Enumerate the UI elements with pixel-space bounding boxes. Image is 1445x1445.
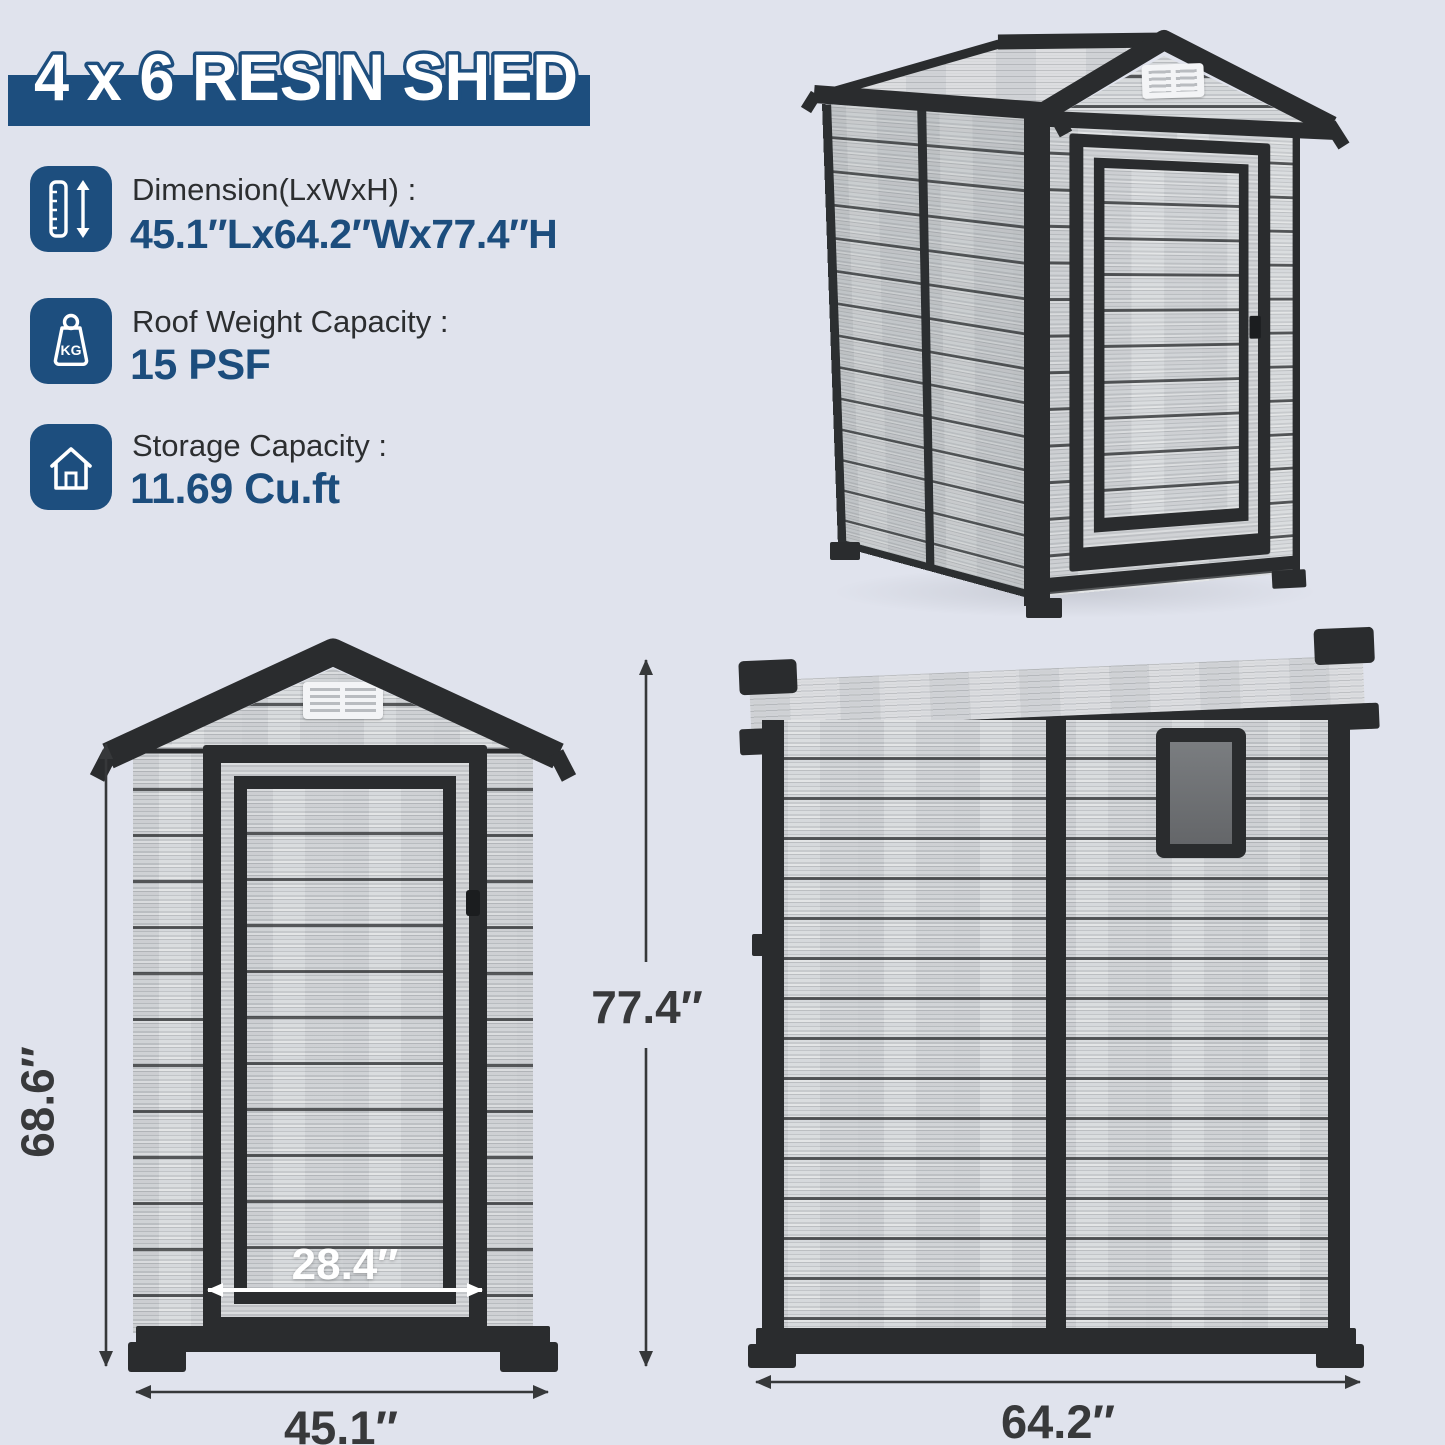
side-window-frame xyxy=(1156,728,1246,858)
weight-kg-icon: KG xyxy=(30,298,112,384)
front-door-panel xyxy=(247,789,443,1291)
house-icon xyxy=(30,424,112,510)
shed-3d-foot-front-left xyxy=(1026,598,1062,618)
side-wall xyxy=(762,720,1350,1340)
shed-3d-foot-rear xyxy=(830,542,860,560)
shed-3d-front-face xyxy=(1050,118,1300,596)
shed-infographic: 4 x 6 RESIN SHED Dimension(LxWxH) : 45.1… xyxy=(0,0,1445,1445)
front-gable-vent xyxy=(303,682,383,719)
front-foot-right xyxy=(500,1342,558,1372)
side-foot-left xyxy=(748,1344,796,1368)
shed-3d-front-right-trim xyxy=(1293,132,1300,573)
spec-label-roof-weight: Roof Weight Capacity : xyxy=(132,304,448,340)
side-roof-cap-left xyxy=(738,659,797,695)
shed-3d-corner-post xyxy=(1024,108,1050,606)
page-title: 4 x 6 RESIN SHED xyxy=(34,40,578,114)
side-base-bar xyxy=(756,1328,1356,1354)
height-ruler-icon xyxy=(30,166,112,252)
weight-icon-kg-text: KG xyxy=(61,342,82,358)
side-window-glass xyxy=(1170,742,1232,844)
side-frame-right xyxy=(1328,720,1350,1340)
shed-3d-side-wall xyxy=(822,104,1028,598)
front-base-bar xyxy=(136,1326,550,1352)
side-foot-right xyxy=(1316,1344,1364,1368)
spec-label-storage: Storage Capacity : xyxy=(132,428,387,464)
spec-value-storage: 11.69 Cu.ft xyxy=(130,465,340,514)
shed-3d-door-panel xyxy=(1104,168,1238,518)
side-frame-center xyxy=(1046,720,1066,1340)
front-wall-height-label: 68.6″ xyxy=(11,1045,65,1160)
shed-3d-door-handle xyxy=(1249,316,1260,339)
page-title-svg: 4 x 6 RESIN SHED xyxy=(0,28,640,138)
side-roof-cap-right xyxy=(1313,627,1374,665)
spec-label-dimension: Dimension(LxWxH) : xyxy=(132,172,416,208)
front-foot-left xyxy=(128,1342,186,1372)
front-door-handle xyxy=(466,890,480,916)
overall-height-label: 77.4″ xyxy=(582,980,712,1034)
side-width-label: 64.2″ xyxy=(975,1394,1141,1445)
door-width-label: 28.4″ xyxy=(278,1240,412,1290)
spec-value-roof-weight: 15 PSF xyxy=(130,341,270,390)
shed-3d-gable-vent xyxy=(1141,63,1204,99)
shed-3d-side-shading xyxy=(822,104,1028,598)
spec-value-dimension: 45.1″Lx64.2″Wx77.4″H xyxy=(130,211,557,258)
shed-3d-foot-front-right xyxy=(1272,569,1307,589)
side-frame-left xyxy=(762,720,784,1340)
front-width-label: 45.1″ xyxy=(258,1400,424,1445)
side-latch xyxy=(752,934,764,956)
